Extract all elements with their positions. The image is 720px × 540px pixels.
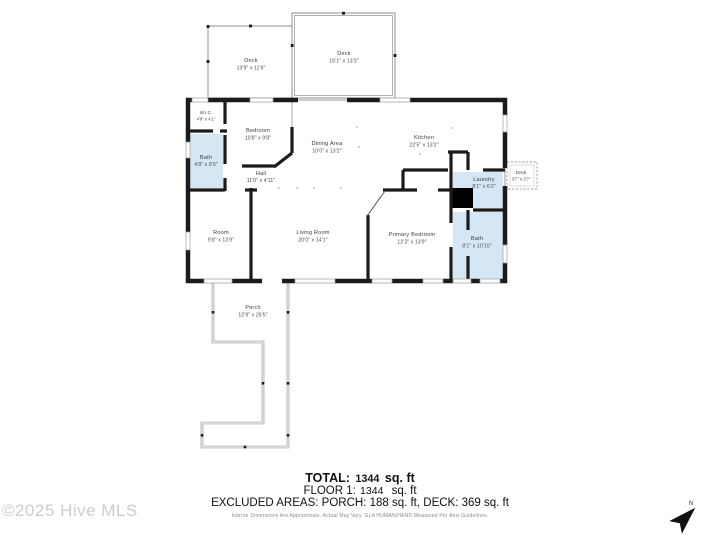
- room-dims-deck-left: 13'9" x 11'6": [237, 66, 266, 72]
- room-label-deck-left: Deck: [244, 58, 258, 64]
- floorplan-page: Deck 13'9" x 11'6" Deck 15'1" x 13'3" W.…: [0, 0, 720, 540]
- bath-left-fill: [190, 134, 223, 188]
- floorplan-canvas: Deck 13'9" x 11'6" Deck 15'1" x 13'3" W.…: [0, 0, 720, 540]
- room-dims-primary: 12'3" x 13'9": [397, 240, 426, 246]
- window-symbol: [503, 115, 507, 132]
- door-leaf: [367, 191, 385, 216]
- room-dims-bath-right: 8'1" x 10'10": [462, 244, 491, 250]
- room-dims-room: 9'8" x 13'9": [208, 238, 234, 244]
- room-label-porch: Porch: [245, 305, 261, 311]
- room-label-bedroom: Bedroom: [246, 128, 270, 134]
- window-symbol: [453, 279, 471, 283]
- room-dims-dining: 10'0" x 13'2": [312, 149, 341, 155]
- window-symbol: [380, 98, 410, 102]
- window-symbol: [480, 279, 500, 283]
- window-symbol: [372, 279, 392, 283]
- total-area-line: TOTAL: 1344 sq. ft: [0, 472, 720, 485]
- total-value: 1344: [355, 473, 379, 485]
- area-summary: TOTAL: 1344 sq. ft FLOOR 1: 1344 sq. ft …: [0, 472, 720, 519]
- window-symbol: [503, 245, 507, 263]
- window-symbol: [186, 142, 190, 158]
- room-dims-bath-left: 4'8" x 8'9": [194, 162, 217, 168]
- floor1-area-line: FLOOR 1: 1344 sq. ft: [0, 485, 720, 497]
- window-symbol: [250, 98, 273, 102]
- room-label-bath-left: Bath: [200, 155, 212, 161]
- excluded-areas-line: EXCLUDED AREAS: PORCH: 188 sq. ft, DECK:…: [0, 497, 720, 509]
- room-dims-hall: 11'0" x 4'11": [247, 178, 276, 184]
- room-dims-deck-small: 3'7" x 3'7": [512, 177, 531, 182]
- room-dims-bedroom: 10'8" x 9'8": [245, 136, 271, 142]
- floor1-value: 1344: [360, 485, 383, 497]
- room-label-primary: Primary Bedroom: [389, 232, 436, 238]
- deck-small-outline: [507, 162, 537, 189]
- window-symbol: [204, 279, 232, 283]
- room-label-kitchen: Kitchen: [414, 135, 434, 141]
- total-label: TOTAL:: [305, 471, 350, 485]
- room-dims-porch: 12'9" x 25'5": [238, 313, 267, 319]
- room-label-dining: Dining Area: [311, 141, 343, 147]
- room-dims-living: 20'0" x 14'1": [298, 238, 327, 244]
- window-symbol: [192, 98, 208, 102]
- disclaimer-text: Interior Dimensions Are Approximate. Act…: [0, 513, 720, 519]
- floor1-label: FLOOR 1:: [303, 485, 355, 497]
- room-dims-kitchen: 22'5" x 13'2": [409, 143, 438, 149]
- room-label-deck-small: Deck: [516, 170, 527, 175]
- window-symbol: [423, 279, 443, 283]
- room-dims-wic: 4'8" x 4'1": [197, 117, 216, 122]
- room-label-wic: W.I.C.: [200, 110, 213, 115]
- window-symbol: [186, 232, 190, 250]
- total-unit: sq. ft: [385, 471, 415, 485]
- room-label-living: Living Room: [296, 230, 329, 236]
- room-dims-laundry: 8'1" x 6'2": [472, 184, 495, 190]
- room-label-hall: Hall: [256, 171, 266, 177]
- room-label-deck-right: Deck: [337, 51, 351, 57]
- room-label-bath-right: Bath: [471, 236, 483, 242]
- window-symbol: [295, 279, 335, 283]
- floor1-unit: sq. ft: [392, 485, 417, 497]
- chimney-block: [451, 188, 473, 208]
- room-dims-deck-right: 15'1" x 13'3": [329, 59, 358, 65]
- room-label-laundry: Laundry: [473, 177, 495, 183]
- room-label-room: Room: [213, 230, 229, 236]
